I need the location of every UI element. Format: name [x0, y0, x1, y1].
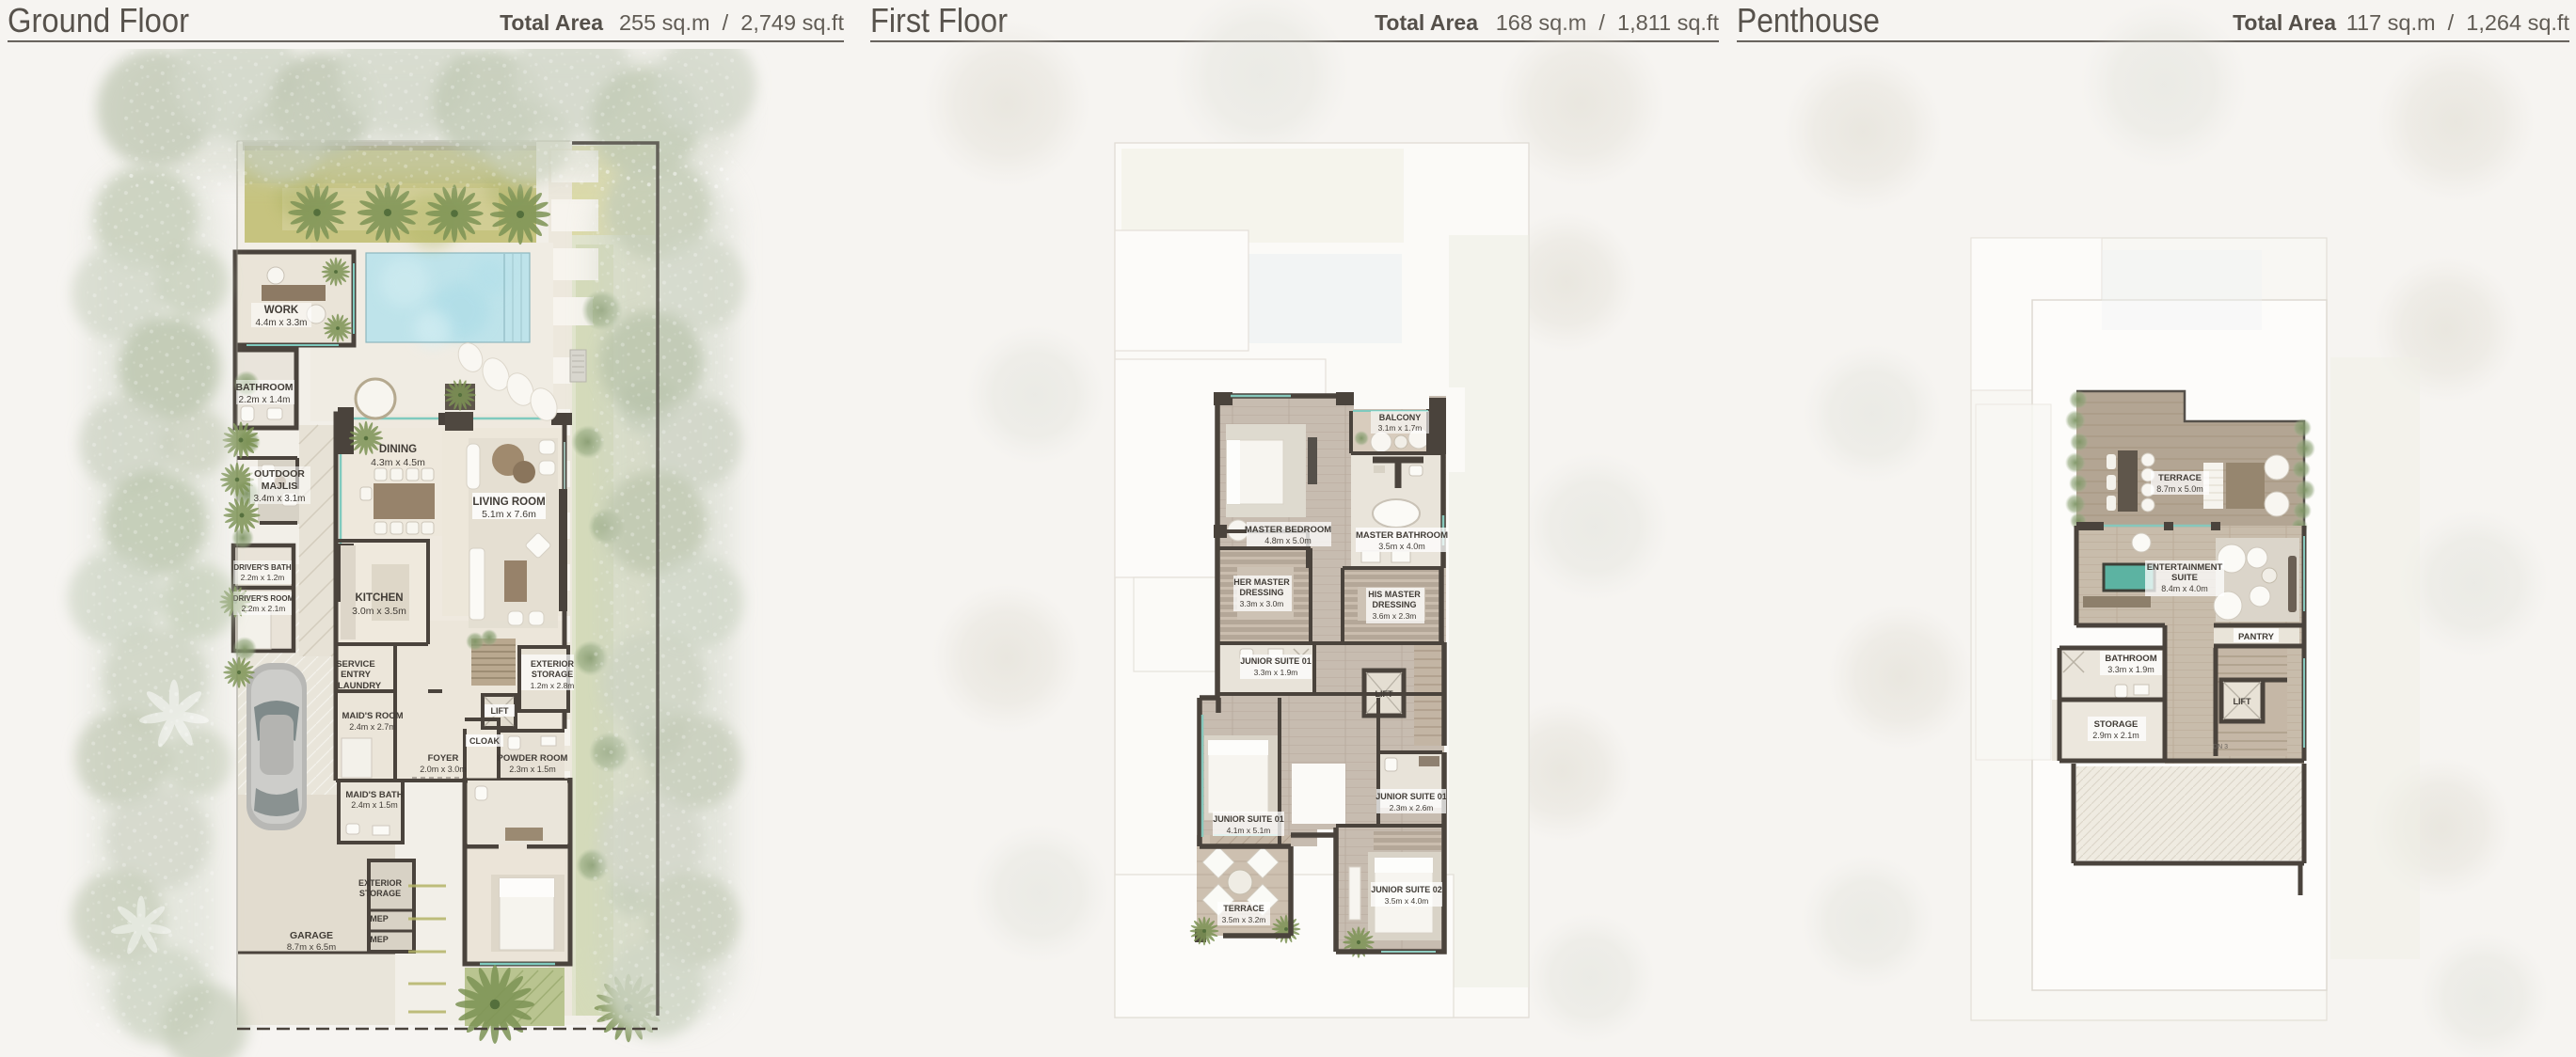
svg-text:LIFT: LIFT — [2234, 697, 2251, 706]
svg-text:3.3m x 1.9m: 3.3m x 1.9m — [2107, 665, 2155, 674]
svg-text:JUNIOR SUITE 01: JUNIOR SUITE 01 — [1213, 814, 1284, 824]
svg-text:Total Area: Total Area — [500, 10, 603, 35]
svg-text:2.2m x 2.1m: 2.2m x 2.1m — [242, 604, 286, 613]
svg-text:2.3m x 2.6m: 2.3m x 2.6m — [1390, 803, 1434, 812]
svg-text:117 sq.m / 1,264 sq.ft: 117 sq.m / 1,264 sq.ft — [2346, 10, 2570, 35]
svg-text:4.1m x 5.1m: 4.1m x 5.1m — [1227, 826, 1271, 835]
svg-text:MEP: MEP — [370, 914, 389, 923]
svg-text:LIFT: LIFT — [491, 706, 509, 716]
svg-text:STORAGE: STORAGE — [2094, 719, 2139, 730]
svg-text:MAJLIS: MAJLIS — [262, 481, 298, 492]
svg-text:HIS MASTER: HIS MASTER — [1368, 590, 1421, 599]
svg-text:CLOAK: CLOAK — [469, 736, 500, 746]
svg-text:JUNIOR SUITE 01: JUNIOR SUITE 01 — [1375, 792, 1447, 801]
svg-text:MEP: MEP — [370, 935, 389, 944]
svg-text:2.4m x 1.5m: 2.4m x 1.5m — [351, 800, 398, 810]
svg-text:1.2m x 2.8m: 1.2m x 2.8m — [531, 681, 575, 690]
svg-text:2.4m x 2.7m: 2.4m x 2.7m — [349, 722, 396, 732]
svg-text:TERRACE: TERRACE — [1223, 904, 1264, 913]
svg-text:BALCONY: BALCONY — [1379, 413, 1422, 422]
svg-text:MASTER BATHROOM: MASTER BATHROOM — [1356, 530, 1448, 541]
svg-text:DINING: DINING — [379, 444, 417, 455]
svg-text:Total Area: Total Area — [1375, 10, 1478, 35]
svg-text:DRIVER'S ROOM: DRIVER'S ROOM — [233, 594, 294, 603]
svg-text:3.5m x 4.0m: 3.5m x 4.0m — [1378, 542, 1425, 551]
svg-text:BATHROOM: BATHROOM — [235, 382, 293, 393]
svg-text:DRIVER'S BATH: DRIVER'S BATH — [233, 563, 292, 572]
svg-text:STORAGE: STORAGE — [359, 889, 401, 898]
svg-text:MAID'S BATH: MAID'S BATH — [345, 790, 403, 800]
svg-text:4.8m x 5.0m: 4.8m x 5.0m — [1264, 536, 1312, 545]
svg-text:HER MASTER: HER MASTER — [1233, 577, 1290, 587]
svg-text:4.4m x 3.3m: 4.4m x 3.3m — [255, 318, 307, 328]
svg-text:DN 3: DN 3 — [2213, 744, 2228, 750]
svg-text:PANTRY: PANTRY — [2238, 632, 2275, 642]
svg-text:Ground Floor: Ground Floor — [8, 1, 189, 39]
svg-text:Penthouse: Penthouse — [1737, 1, 1880, 39]
svg-text:2.9m x 2.1m: 2.9m x 2.1m — [2092, 731, 2139, 740]
svg-text:3.1m x 1.7m: 3.1m x 1.7m — [1378, 423, 1423, 433]
svg-text:2.3m x 1.5m: 2.3m x 1.5m — [509, 765, 556, 774]
svg-text:2.0m x 3.0m: 2.0m x 3.0m — [420, 765, 467, 774]
svg-text:5.1m x 7.6m: 5.1m x 7.6m — [482, 509, 536, 520]
svg-text:TERRACE: TERRACE — [2158, 473, 2202, 483]
svg-text:8.7m x 6.5m: 8.7m x 6.5m — [287, 942, 336, 953]
svg-text:JUNIOR SUITE 02: JUNIOR SUITE 02 — [1371, 885, 1442, 894]
svg-text:8.7m x 5.0m: 8.7m x 5.0m — [2156, 484, 2203, 494]
svg-text:DRESSING: DRESSING — [1372, 600, 1416, 609]
svg-text:STORAGE: STORAGE — [532, 670, 573, 679]
svg-text:MAID'S ROOM: MAID'S ROOM — [342, 711, 403, 721]
svg-text:3.3m x 3.0m: 3.3m x 3.0m — [1240, 599, 1284, 608]
svg-text:LIVING ROOM: LIVING ROOM — [472, 497, 545, 508]
svg-text:2.2m x 1.4m: 2.2m x 1.4m — [238, 395, 290, 405]
svg-text:3.4m x 3.1m: 3.4m x 3.1m — [253, 494, 305, 504]
svg-text:3.0m x 3.5m: 3.0m x 3.5m — [352, 606, 406, 617]
svg-text:3.5m x 3.2m: 3.5m x 3.2m — [1222, 915, 1266, 924]
svg-text:LAUNDRY: LAUNDRY — [338, 681, 382, 691]
svg-text:2.2m x 1.2m: 2.2m x 1.2m — [241, 573, 285, 582]
svg-text:ENTERTAINMENT: ENTERTAINMENT — [2147, 562, 2223, 573]
svg-text:WORK: WORK — [264, 305, 299, 316]
svg-text:EXTERIOR: EXTERIOR — [358, 878, 403, 888]
svg-text:FOYER: FOYER — [428, 753, 459, 764]
svg-text:MASTER BEDROOM: MASTER BEDROOM — [1245, 525, 1331, 535]
svg-text:DRESSING: DRESSING — [1239, 588, 1283, 597]
svg-text:4.3m x 4.5m: 4.3m x 4.5m — [371, 457, 425, 468]
svg-text:SUITE: SUITE — [2171, 573, 2198, 583]
svg-text:3.6m x 2.3m: 3.6m x 2.3m — [1373, 611, 1417, 621]
svg-text:SERVICE: SERVICE — [336, 659, 375, 670]
svg-text:255 sq.m / 2,749 sq.ft: 255 sq.m / 2,749 sq.ft — [619, 10, 845, 35]
svg-text:EXTERIOR: EXTERIOR — [531, 659, 575, 669]
svg-text:3.3m x 1.9m: 3.3m x 1.9m — [1254, 668, 1298, 677]
svg-text:GARAGE: GARAGE — [290, 930, 333, 941]
svg-text:3.5m x 4.0m: 3.5m x 4.0m — [1385, 896, 1429, 906]
svg-text:LIFT: LIFT — [1375, 689, 1393, 699]
svg-text:POWDER ROOM: POWDER ROOM — [498, 753, 568, 764]
svg-text:BATHROOM: BATHROOM — [2105, 654, 2156, 664]
svg-text:KITCHEN: KITCHEN — [355, 592, 403, 604]
svg-text:JUNIOR SUITE 01: JUNIOR SUITE 01 — [1240, 656, 1312, 666]
svg-text:8.4m x 4.0m: 8.4m x 4.0m — [2161, 584, 2208, 593]
svg-text:ENTRY: ENTRY — [341, 670, 372, 680]
svg-text:OUTDOOR: OUTDOOR — [254, 468, 305, 480]
svg-text:Total Area: Total Area — [2233, 10, 2336, 35]
